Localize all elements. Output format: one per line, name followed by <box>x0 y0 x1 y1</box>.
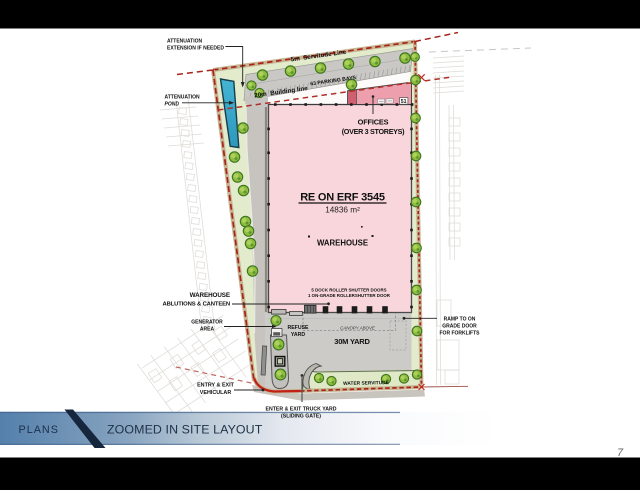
svg-text:ZOOMED IN SITE LAYOUT: ZOOMED IN SITE LAYOUT <box>107 423 263 437</box>
svg-text:30M YARD: 30M YARD <box>334 337 370 346</box>
svg-text:REFUSE: REFUSE <box>287 325 309 331</box>
svg-text:RAMP TO ON: RAMP TO ON <box>444 317 476 323</box>
svg-text:RE ON ERF 3545: RE ON ERF 3545 <box>300 192 385 204</box>
svg-text:POND: POND <box>165 101 180 107</box>
svg-text:ATTENUATION: ATTENUATION <box>165 95 200 101</box>
svg-text:14836 m²: 14836 m² <box>325 206 360 215</box>
svg-text:VEHICULAR: VEHICULAR <box>200 390 232 396</box>
svg-text:GRADE DOOR: GRADE DOOR <box>442 324 477 330</box>
svg-text:EXTENSION IF NEEDED: EXTENSION IF NEEDED <box>167 45 224 51</box>
svg-text:GENERATOR: GENERATOR <box>191 320 223 326</box>
svg-text:ENTER & EXIT TRUCK YARD: ENTER & EXIT TRUCK YARD <box>266 407 337 413</box>
svg-text:WAREHOUSE: WAREHOUSE <box>190 292 230 299</box>
svg-text:ATTENUATION: ATTENUATION <box>167 39 202 45</box>
svg-text:WATER SERVITUDE: WATER SERVITUDE <box>343 380 390 387</box>
svg-text:YARD: YARD <box>291 332 305 338</box>
svg-text:ABLUTIONS & CANTEEN: ABLUTIONS & CANTEEN <box>162 302 230 308</box>
svg-text:51: 51 <box>401 99 407 105</box>
svg-text:7: 7 <box>617 447 624 459</box>
svg-text:AREA: AREA <box>200 326 215 332</box>
svg-text:5 DOCK ROLLER SHUTTER DOORS: 5 DOCK ROLLER SHUTTER DOORS <box>311 288 386 293</box>
svg-text:(SLIDING GATE): (SLIDING GATE) <box>281 414 321 420</box>
svg-text:1 ON-GRADE ROLLERSHUTTER DOOR: 1 ON-GRADE ROLLERSHUTTER DOOR <box>308 293 391 298</box>
svg-text:WAREHOUSE: WAREHOUSE <box>317 239 368 248</box>
svg-text:CANOPY ABOVE: CANOPY ABOVE <box>340 326 375 331</box>
svg-text:FOR FORKLIFTS: FOR FORKLIFTS <box>440 331 481 337</box>
svg-text:OFFICES: OFFICES <box>358 118 389 127</box>
svg-text:PLANS: PLANS <box>19 424 59 436</box>
svg-text:(OVER 3 STOREYS): (OVER 3 STOREYS) <box>342 127 405 136</box>
svg-text:ENTRY & EXIT: ENTRY & EXIT <box>197 383 235 389</box>
